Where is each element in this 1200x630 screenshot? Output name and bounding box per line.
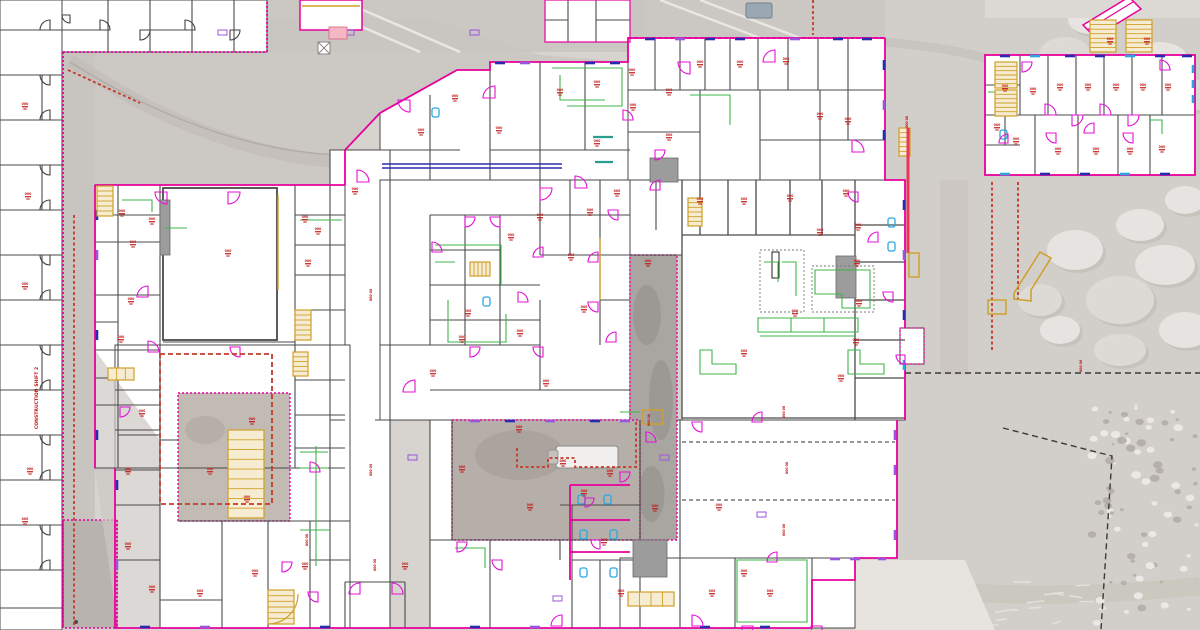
- room-tag-sub: 00: [1014, 143, 1018, 146]
- room-tag-sub: 00: [316, 233, 320, 236]
- room-tag: 000: [543, 379, 550, 383]
- room-tag: 000: [783, 57, 790, 61]
- room-tag-sub: 00: [595, 86, 599, 89]
- room-tag-sub: 00: [698, 203, 702, 206]
- room-tag: 000: [838, 374, 845, 378]
- room-tag-sub: 00: [303, 221, 307, 224]
- room-tag: 000: [1113, 83, 1120, 87]
- room-tag: 000: [787, 194, 794, 198]
- room-tag: 000: [459, 465, 466, 469]
- room-tag-sub: 00: [1056, 153, 1060, 156]
- room-tag-sub: 00: [198, 595, 202, 598]
- room-tag-sub: 00: [1128, 153, 1132, 156]
- room-tag: 000: [402, 562, 409, 566]
- room-tag: 000: [128, 297, 135, 301]
- room-tag: 000: [207, 467, 214, 471]
- room-tag: 000: [594, 80, 601, 84]
- room-tag-sub: 00: [528, 509, 532, 512]
- room-tag: 000: [856, 299, 863, 303]
- floorplan-screenshot: 0000000000000000000000000000000000000000…: [0, 0, 1200, 630]
- room-tag: 000: [149, 217, 156, 221]
- room-tag-sub: 00: [431, 375, 435, 378]
- room-tag: 000: [249, 417, 256, 421]
- room-tag-sub: 00: [460, 341, 464, 344]
- room-tag-sub: 00: [23, 108, 27, 111]
- room-tag: 000: [767, 589, 774, 593]
- room-tag: 000: [252, 569, 259, 573]
- room-tag-sub: 00: [1166, 89, 1170, 92]
- room-tag-vertical: 000 00: [369, 463, 373, 476]
- room-tag-vertical: 000 00: [782, 523, 786, 536]
- room-tag-sub: 00: [466, 315, 470, 318]
- room-tag-sub: 00: [608, 475, 612, 478]
- room-tag-sub: 00: [854, 344, 858, 347]
- room-tag-sub: 00: [126, 548, 130, 551]
- room-tag-sub: 00: [742, 355, 746, 358]
- room-tag-sub: 00: [784, 63, 788, 66]
- room-tag: 000: [709, 589, 716, 593]
- room-tag: 000: [716, 503, 723, 507]
- room-tag: 000: [1030, 87, 1037, 91]
- room-tag: 000: [22, 282, 29, 286]
- room-tag-sub: 00: [857, 305, 861, 308]
- room-tag: 000: [149, 585, 156, 589]
- room-tag-sub: 00: [303, 568, 307, 571]
- room-tag-sub: 00: [595, 145, 599, 148]
- room-tag-sub: 00: [582, 495, 586, 498]
- room-tag-sub: 00: [1114, 89, 1118, 92]
- room-tag: 000: [22, 517, 29, 521]
- room-tag-sub: 00: [208, 473, 212, 476]
- room-tag-sub: 00: [353, 193, 357, 196]
- room-tag-sub: 00: [1058, 89, 1062, 92]
- room-tag: 000: [568, 253, 575, 257]
- room-tag-sub: 00: [561, 465, 565, 468]
- room-tag: 000: [560, 459, 567, 463]
- room-tag: 000: [817, 228, 824, 232]
- room-tag: 000: [516, 425, 523, 429]
- room-tag-sub: 00: [126, 473, 130, 476]
- room-tag: 000: [666, 88, 673, 92]
- room-tag: 000: [594, 139, 601, 143]
- room-tag-sub: 00: [788, 200, 792, 203]
- room-tag: 000: [741, 349, 748, 353]
- room-tag-sub: 00: [509, 239, 513, 242]
- room-tag: 000: [618, 589, 625, 593]
- room-tag-vertical: 000 00: [647, 413, 651, 426]
- room-tag: 000: [1093, 147, 1100, 151]
- room-tag: 000: [697, 60, 704, 64]
- room-tag: 000: [459, 335, 466, 339]
- room-tag-sub: 00: [588, 214, 592, 217]
- room-tag-sub: 00: [846, 123, 850, 126]
- room-tag: 000: [130, 240, 137, 244]
- room-tag-sub: 00: [1145, 43, 1149, 46]
- room-tag-sub: 00: [518, 335, 522, 338]
- room-tag-sub: 00: [855, 265, 859, 268]
- room-tag: 000: [197, 589, 204, 593]
- room-tag-sub: 00: [419, 134, 423, 137]
- room-tag: 000: [855, 223, 862, 227]
- room-tag-sub: 00: [250, 423, 254, 426]
- corridor-note: CONSTRUCTION SHIFT 2: [34, 367, 40, 429]
- room-tag-sub: 00: [129, 303, 133, 306]
- room-tag: 000: [853, 338, 860, 342]
- room-tag-sub: 00: [497, 132, 501, 135]
- room-tag-sub: 00: [844, 195, 848, 198]
- room-tag: 000: [557, 88, 564, 92]
- room-tag: 000: [1055, 147, 1062, 151]
- room-tag: 000: [645, 259, 652, 263]
- room-tag-sub: 00: [995, 129, 999, 132]
- room-tag-sub: 00: [1160, 151, 1164, 154]
- room-tag: 000: [537, 213, 544, 217]
- room-tag-sub: 00: [150, 591, 154, 594]
- room-tag: 000: [517, 329, 524, 333]
- room-tag: 000: [119, 209, 126, 213]
- room-tag-vertical: 000 00: [785, 461, 789, 474]
- room-tag: 000: [845, 117, 852, 121]
- room-tag: 000: [452, 94, 459, 98]
- room-tag: 000: [305, 259, 312, 263]
- room-tag: 000: [741, 197, 748, 201]
- room-tag-sub: 00: [26, 198, 30, 201]
- room-tag-vertical: 000 00: [782, 405, 786, 418]
- room-tag: 000: [1002, 84, 1009, 88]
- room-tag: 000: [587, 208, 594, 212]
- room-tag: 000: [1159, 145, 1166, 149]
- room-tag-sub: 00: [119, 341, 123, 344]
- room-tag-sub: 00: [226, 255, 230, 258]
- room-tag: 000: [1140, 83, 1147, 87]
- room-tag-sub: 00: [742, 575, 746, 578]
- room-tag-sub: 00: [245, 501, 249, 504]
- room-tag-sub: 00: [1031, 93, 1035, 96]
- room-tag-sub: 00: [538, 219, 542, 222]
- room-tag-sub: 00: [150, 223, 154, 226]
- room-tag-sub: 00: [667, 139, 671, 142]
- room-tag: 000: [508, 233, 515, 237]
- room-tag-sub: 00: [717, 509, 721, 512]
- room-tag-sub: 00: [856, 229, 860, 232]
- room-tag: 000: [629, 68, 636, 72]
- room-tag: 000: [496, 126, 503, 130]
- room-tag: 000: [244, 495, 251, 499]
- room-tag: 000: [630, 103, 637, 107]
- room-tag-sub: 00: [1086, 89, 1090, 92]
- room-tag: 000: [1085, 83, 1092, 87]
- room-tag-sub: 00: [544, 385, 548, 388]
- room-tag-sub: 00: [28, 473, 32, 476]
- room-tag: 000: [139, 409, 146, 413]
- room-tag-sub: 00: [558, 94, 562, 97]
- room-tag-vertical: 000 00: [369, 288, 373, 301]
- room-tag-sub: 00: [818, 234, 822, 237]
- room-tag-sub: 00: [602, 544, 606, 547]
- room-tag: 000: [302, 562, 309, 566]
- room-tag: 000: [22, 102, 29, 106]
- room-tag-sub: 00: [453, 100, 457, 103]
- room-tag-sub: 00: [23, 288, 27, 291]
- room-tag-sub: 00: [631, 109, 635, 112]
- room-tag-sub: 00: [140, 415, 144, 418]
- room-tag-sub: 00: [253, 575, 257, 578]
- room-tag: 000: [527, 503, 534, 507]
- room-tag-sub: 00: [667, 94, 671, 97]
- room-tag-sub: 00: [615, 195, 619, 198]
- room-tag-sub: 00: [793, 315, 797, 318]
- room-tag: 000: [125, 542, 132, 546]
- room-tag: 000: [118, 335, 125, 339]
- room-tag: 000: [25, 192, 32, 196]
- room-tag: 000: [1165, 83, 1172, 87]
- room-tag-sub: 00: [403, 568, 407, 571]
- room-tag: 000: [315, 227, 322, 231]
- room-tag-sub: 00: [818, 118, 822, 121]
- room-tag: 000: [817, 112, 824, 116]
- room-tag-vertical: 000 00: [373, 558, 377, 571]
- room-tag: 000: [125, 467, 132, 471]
- room-tag-sub: 00: [653, 510, 657, 513]
- room-tag: 000: [854, 259, 861, 263]
- room-tag-sub: 00: [630, 74, 634, 77]
- room-tag-sub: 00: [569, 259, 573, 262]
- room-tag: 000: [225, 249, 232, 253]
- room-tag: 000: [1144, 37, 1151, 41]
- room-tag-sub: 00: [517, 431, 521, 434]
- room-tag: 000: [430, 369, 437, 373]
- room-tag: 000: [1013, 137, 1020, 141]
- room-tag-sub: 00: [1094, 153, 1098, 156]
- room-tag: 000: [418, 128, 425, 132]
- room-tag-sub: 00: [619, 595, 623, 598]
- room-tag: 000: [843, 189, 850, 193]
- room-tag-sub: 00: [460, 471, 464, 474]
- room-tag: 000: [737, 60, 744, 64]
- room-tag-vertical: 000 00: [305, 533, 309, 546]
- room-tag: 000: [994, 123, 1001, 127]
- room-tag: 000: [1127, 147, 1134, 151]
- room-tag-sub: 00: [768, 595, 772, 598]
- room-tag-sub: 00: [131, 246, 135, 249]
- room-tag: 000: [652, 504, 659, 508]
- room-tag-sub: 00: [1141, 89, 1145, 92]
- room-tag: 000: [697, 197, 704, 201]
- room-tag: 000: [465, 309, 472, 313]
- room-tag: 000: [352, 187, 359, 191]
- room-tag: 000: [581, 489, 588, 493]
- room-tag: 000: [792, 309, 799, 313]
- room-tag: 000: [614, 189, 621, 193]
- room-tag-sub: 00: [120, 215, 124, 218]
- room-tag: 000: [666, 133, 673, 137]
- room-tag-sub: 00: [1003, 90, 1007, 93]
- room-tag: 000: [607, 469, 614, 473]
- room-tag-sub: 00: [306, 265, 310, 268]
- room-tag: 000: [601, 538, 608, 542]
- room-tag-vertical: 000 00: [1079, 359, 1083, 372]
- room-tag: 000: [581, 305, 588, 309]
- room-tag: 000: [1107, 37, 1114, 41]
- room-tag-vertical: 000 00: [905, 115, 909, 128]
- room-tag-sub: 00: [738, 66, 742, 69]
- room-tag-sub: 00: [839, 380, 843, 383]
- room-tag-sub: 00: [23, 523, 27, 526]
- room-tag: 000: [27, 467, 34, 471]
- room-tag-sub: 00: [742, 203, 746, 206]
- room-tag-sub: 00: [710, 595, 714, 598]
- room-tag-sub: 00: [1108, 43, 1112, 46]
- room-tag-sub: 00: [698, 66, 702, 69]
- room-tag: 000: [302, 215, 309, 219]
- room-tag-sub: 00: [646, 265, 650, 268]
- room-tag: 000: [1057, 83, 1064, 87]
- room-tag-sub: 00: [582, 311, 586, 314]
- room-tag: 000: [741, 569, 748, 573]
- floorplan-canvas: 0000000000000000000000000000000000000000…: [0, 0, 1200, 630]
